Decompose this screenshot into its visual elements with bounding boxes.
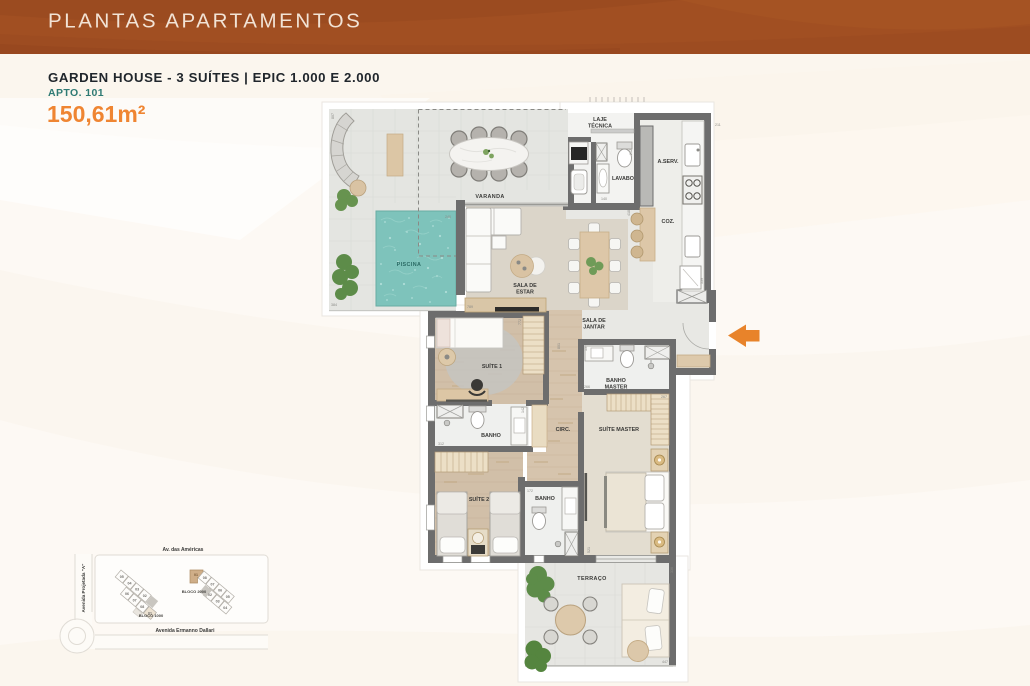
- svg-text:801: 801: [557, 343, 561, 349]
- svg-text:A.SERV.: A.SERV.: [658, 159, 679, 165]
- svg-text:07: 07: [210, 582, 214, 586]
- svg-text:PISCINA: PISCINA: [397, 262, 422, 268]
- svg-text:142: 142: [521, 407, 525, 413]
- svg-text:03: 03: [135, 588, 139, 592]
- svg-text:BANHO: BANHO: [481, 433, 501, 439]
- svg-text:JANTAR: JANTAR: [583, 325, 605, 331]
- svg-text:05: 05: [120, 575, 124, 579]
- svg-text:172: 172: [527, 489, 533, 493]
- svg-text:LAJE: LAJE: [593, 117, 607, 123]
- svg-text:02: 02: [143, 594, 147, 598]
- svg-text:Av. das Américas: Av. das Américas: [163, 547, 204, 553]
- svg-text:789: 789: [467, 305, 473, 309]
- svg-text:312: 312: [438, 442, 444, 446]
- svg-text:05: 05: [226, 595, 230, 599]
- svg-text:CIRC.: CIRC.: [556, 427, 571, 433]
- svg-text:03: 03: [216, 599, 220, 603]
- svg-text:SUÍTE 1: SUÍTE 1: [482, 362, 502, 370]
- svg-text:BANHO: BANHO: [535, 496, 555, 502]
- svg-text:Avenida Ermanno Dallari: Avenida Ermanno Dallari: [156, 628, 216, 634]
- svg-text:PLANTAS APARTAMENTOS: PLANTAS APARTAMENTOS: [48, 10, 362, 33]
- svg-text:SUÍTE 2: SUÍTE 2: [469, 495, 489, 503]
- svg-text:539: 539: [700, 278, 704, 284]
- svg-text:01: 01: [194, 573, 198, 577]
- svg-text:06: 06: [125, 592, 129, 596]
- svg-text:COZ.: COZ.: [662, 219, 675, 225]
- svg-text:04: 04: [127, 581, 131, 585]
- svg-text:212: 212: [629, 149, 633, 155]
- svg-text:140: 140: [601, 197, 607, 201]
- svg-text:240: 240: [445, 215, 451, 219]
- svg-text:SALA DE: SALA DE: [582, 318, 606, 324]
- svg-text:521: 521: [587, 547, 591, 553]
- svg-text:06: 06: [218, 589, 222, 593]
- svg-text:08: 08: [203, 576, 207, 580]
- svg-text:150,61m²: 150,61m²: [47, 101, 146, 127]
- svg-text:266: 266: [584, 385, 590, 389]
- svg-text:TÉCNICA: TÉCNICA: [588, 122, 612, 130]
- svg-text:Avenida Projetada "A": Avenida Projetada "A": [81, 564, 86, 613]
- svg-text:BANHO: BANHO: [606, 378, 626, 384]
- svg-text:772: 772: [518, 319, 522, 325]
- svg-text:04: 04: [223, 606, 227, 610]
- svg-text:447: 447: [662, 660, 668, 664]
- svg-text:SALA DE: SALA DE: [513, 283, 537, 289]
- svg-text:BLOCO 2000: BLOCO 2000: [182, 589, 207, 594]
- svg-text:LAVABO: LAVABO: [612, 176, 634, 182]
- svg-text:384: 384: [331, 303, 337, 307]
- svg-text:TERRAÇO: TERRAÇO: [577, 576, 606, 582]
- svg-text:807: 807: [331, 113, 335, 119]
- svg-text:BLOCO 1000: BLOCO 1000: [139, 613, 164, 618]
- svg-text:GARDEN HOUSE - 3 SUÍTES | EPIC: GARDEN HOUSE - 3 SUÍTES | EPIC 1.000 E 2…: [48, 70, 380, 85]
- svg-text:336: 336: [670, 567, 674, 573]
- svg-text:418: 418: [627, 210, 631, 216]
- svg-text:VARANDA: VARANDA: [475, 194, 504, 200]
- svg-text:08: 08: [140, 605, 144, 609]
- svg-text:211: 211: [715, 123, 721, 127]
- svg-text:ESTAR: ESTAR: [516, 290, 534, 296]
- svg-text:02: 02: [208, 593, 212, 597]
- svg-text:SUÍTE MASTER: SUÍTE MASTER: [599, 425, 639, 433]
- svg-text:137: 137: [584, 345, 588, 351]
- svg-text:267: 267: [661, 395, 667, 399]
- svg-text:MASTER: MASTER: [605, 385, 628, 391]
- svg-text:07: 07: [133, 598, 137, 602]
- svg-text:APTO. 101: APTO. 101: [48, 87, 104, 99]
